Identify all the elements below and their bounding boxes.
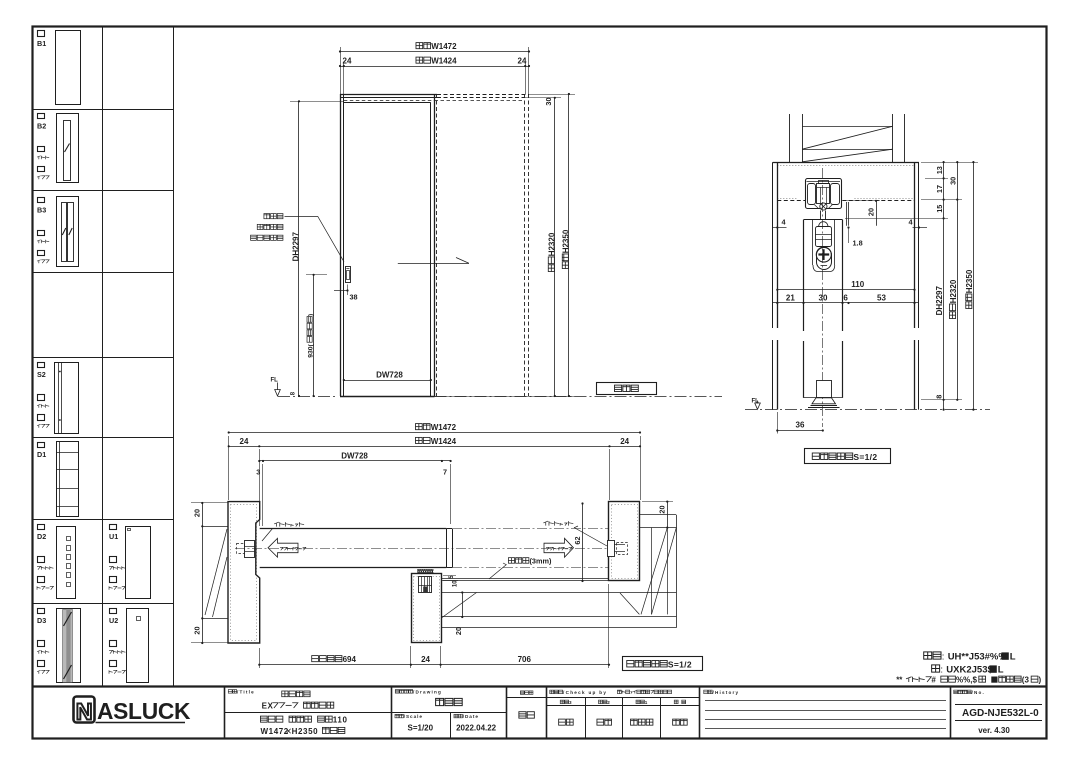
svg-text:/History: /History (713, 690, 740, 695)
svg-text:15: 15 (935, 205, 944, 213)
svg-text:H2320: H2320 (949, 279, 958, 303)
svg-text:17: 17 (935, 185, 944, 193)
svg-text:D1: D1 (37, 450, 46, 459)
svg-text:/Drawing: /Drawing (413, 689, 442, 694)
svg-text:/No.: /No. (972, 690, 985, 695)
svg-text:H2350: H2350 (965, 269, 974, 293)
svg-text:30: 30 (819, 294, 828, 303)
svg-text::: : (942, 652, 945, 663)
svg-text:UH**J53#%%: UH**J53#%% (948, 652, 1008, 663)
svg-text:20: 20 (454, 627, 463, 635)
svg-text:B3: B3 (37, 206, 46, 215)
svg-text:U1: U1 (109, 532, 118, 541)
svg-text:D2: D2 (37, 532, 46, 541)
svg-text:B1: B1 (37, 39, 46, 48)
svg-text:W1472: W1472 (261, 727, 289, 736)
svg-text:%%,$: %%,$ (956, 676, 977, 685)
svg-text:110: 110 (333, 716, 348, 725)
svg-text:H2350: H2350 (292, 727, 319, 736)
svg-text:W1472: W1472 (431, 423, 457, 432)
svg-text:20: 20 (866, 208, 875, 216)
svg-text:ASLUCK: ASLUCK (97, 698, 191, 724)
svg-text:L: L (998, 665, 1004, 676)
svg-text:30: 30 (544, 97, 553, 105)
svg-text:DH2297: DH2297 (291, 231, 300, 261)
svg-text:DW728: DW728 (376, 370, 403, 379)
svg-text:EX: EX (262, 702, 274, 711)
svg-text:S2: S2 (37, 370, 46, 379)
svg-text:694: 694 (343, 655, 357, 664)
svg-text:#: # (931, 676, 936, 685)
svg-text:36: 36 (796, 421, 805, 430)
svg-text:/Scale: /Scale (404, 714, 423, 719)
svg-text:N: N (76, 699, 93, 725)
svg-text:L: L (1010, 652, 1016, 663)
svg-text:**: ** (896, 676, 903, 685)
svg-text:/Check up by: /Check up by (563, 690, 607, 695)
svg-text:S=1/20: S=1/20 (408, 724, 434, 733)
svg-text:13: 13 (935, 166, 944, 174)
svg-text:UXK2J53$: UXK2J53$ (946, 665, 993, 676)
svg-text:30: 30 (949, 177, 958, 185)
svg-text:62: 62 (573, 536, 582, 544)
svg-text:1.8: 1.8 (853, 239, 863, 248)
svg-text:6: 6 (843, 294, 848, 303)
svg-text:20: 20 (658, 505, 667, 513)
svg-text:H2320: H2320 (548, 232, 557, 256)
svg-text:): ) (1039, 676, 1042, 685)
svg-text:3: 3 (569, 700, 572, 705)
svg-text:8: 8 (934, 395, 943, 399)
svg-text:24: 24 (620, 437, 629, 446)
svg-text:B2: B2 (37, 122, 46, 131)
svg-text:10: 10 (453, 580, 459, 587)
svg-text:706: 706 (518, 655, 532, 664)
svg-text:24: 24 (421, 655, 430, 664)
svg-text:S=1/2: S=1/2 (853, 452, 877, 462)
svg-text:DW728: DW728 (341, 452, 368, 461)
svg-text:53: 53 (877, 294, 886, 303)
svg-text:S=1/2: S=1/2 (668, 659, 692, 669)
svg-text:W1424: W1424 (431, 57, 457, 66)
svg-text::: : (940, 665, 943, 676)
svg-text:2022.04.22: 2022.04.22 (456, 724, 497, 733)
svg-text:110: 110 (851, 280, 864, 289)
svg-text:D3: D3 (37, 616, 46, 625)
svg-text:ver. 4.30: ver. 4.30 (978, 726, 1010, 735)
svg-text:AGD-NJE532L-0: AGD-NJE532L-0 (962, 708, 1039, 719)
svg-text:21: 21 (786, 294, 795, 303)
svg-text:1: 1 (645, 700, 648, 705)
svg-text:3: 3 (256, 468, 260, 477)
svg-text:/Title: /Title (237, 689, 255, 694)
svg-text:2: 2 (607, 700, 610, 705)
svg-text:38: 38 (350, 293, 358, 302)
svg-text:W1424: W1424 (431, 437, 457, 446)
svg-text:FL: FL (271, 378, 279, 384)
svg-text:20: 20 (193, 626, 202, 634)
svg-text:24: 24 (240, 437, 249, 446)
svg-text:930(: 930( (307, 343, 314, 357)
svg-text:24: 24 (343, 57, 352, 66)
svg-text:(3: (3 (1022, 676, 1030, 685)
svg-text:DH2297: DH2297 (935, 285, 944, 315)
svg-text:H2350: H2350 (562, 229, 571, 253)
svg-text:20: 20 (193, 509, 202, 517)
svg-text:): ) (307, 314, 314, 316)
svg-text:/Date: /Date (463, 714, 479, 719)
svg-text:U2: U2 (109, 616, 118, 625)
svg-text:7: 7 (443, 468, 447, 477)
svg-text:W1472: W1472 (431, 42, 457, 51)
svg-text:(3mm): (3mm) (530, 557, 552, 566)
